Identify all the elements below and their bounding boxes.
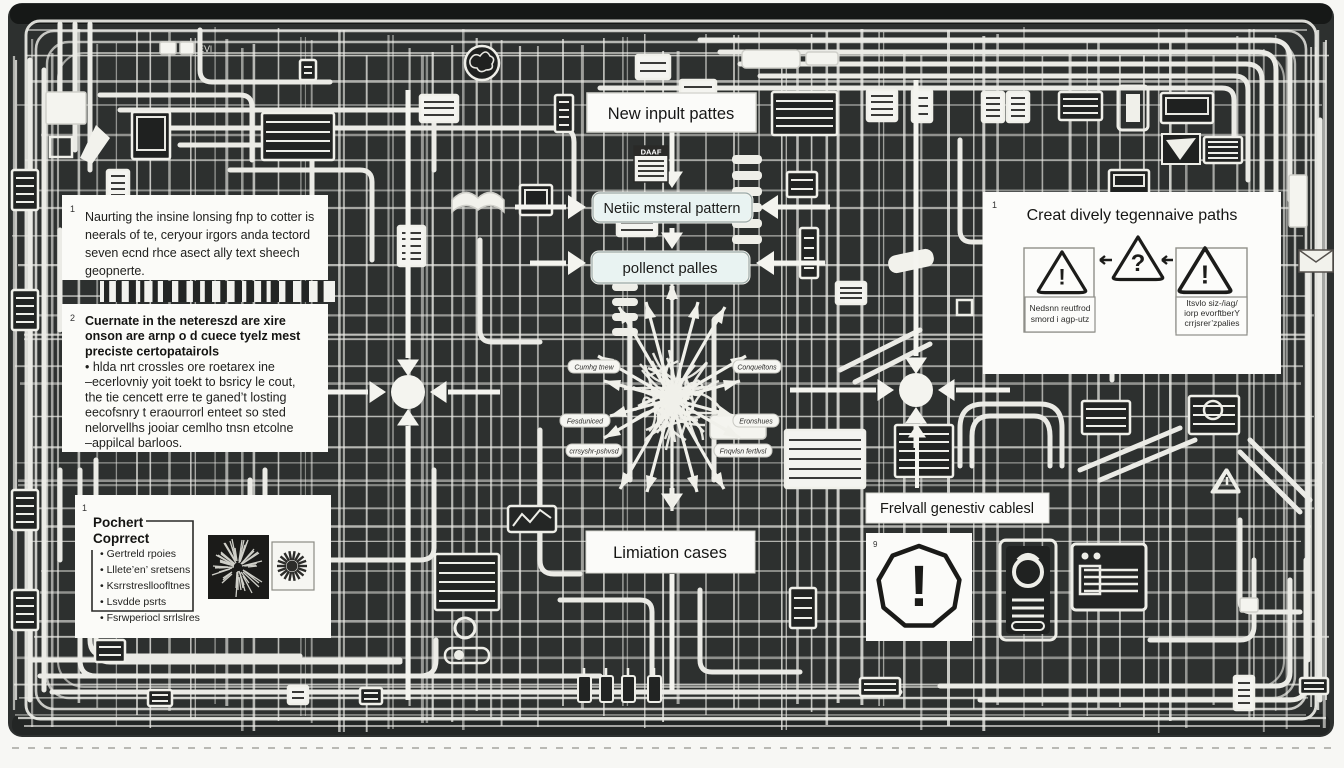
svg-text:New inpult pattes: New inpult pattes — [608, 105, 735, 123]
svg-text:neerals of te, ceryour irgors: neerals of te, ceryour irgors anda tecto… — [85, 228, 310, 242]
svg-text:nelorvellhs jooiar cemlho tnsn: nelorvellhs jooiar cemlho tnsn etcolne — [85, 421, 293, 435]
svg-text:Nedsnn reutfrod: Nedsnn reutfrod — [1030, 303, 1091, 313]
svg-text:!: ! — [1201, 259, 1210, 289]
svg-text:1: 1 — [70, 204, 75, 214]
svg-text:Itsvlo siz-/iag/: Itsvlo siz-/iag/ — [1186, 298, 1238, 308]
svg-text:Limiation cases: Limiation cases — [613, 544, 727, 562]
svg-text:• Lsvdde psrts: • Lsvdde psrts — [100, 596, 166, 608]
svg-text:EVl: EVl — [198, 44, 212, 54]
svg-text:–appilcal barloos.: –appilcal barloos. — [85, 436, 182, 450]
svg-text:Eronshues: Eronshues — [739, 419, 773, 426]
svg-text:geopnerte.: geopnerte. — [85, 264, 145, 278]
svg-text:the tie cencett erre te ganed’: the tie cencett erre te ganed’t losting — [85, 390, 287, 404]
svg-text:Frelvall genestiv cablesl: Frelvall genestiv cablesl — [880, 501, 1034, 517]
svg-text:• Gertreld rpoies: • Gertreld rpoies — [100, 548, 176, 560]
svg-text:?: ? — [1131, 250, 1146, 277]
svg-text:Cumhg tnew: Cumhg tnew — [574, 365, 614, 372]
svg-text:pollenct palles: pollenct palles — [622, 260, 717, 277]
svg-text:crrjsrer’zpalies: crrjsrer’zpalies — [1184, 318, 1239, 328]
svg-text:Netiic msteral pattern: Netiic msteral pattern — [604, 201, 741, 217]
svg-text:• Ksrrstreslloofltnes: • Ksrrstreslloofltnes — [100, 580, 190, 592]
svg-text:Pochert: Pochert — [93, 515, 144, 530]
svg-text:Coprrect: Coprrect — [93, 531, 150, 546]
svg-text:Creat dively tegennaive paths: Creat dively tegennaive paths — [1027, 207, 1238, 224]
svg-text:Fnqvlsn fertlvsl: Fnqvlsn fertlvsl — [720, 449, 767, 456]
svg-text:preciste certopatairols: preciste certopatairols — [85, 344, 219, 358]
svg-text:Cuernate in the netereszd are: Cuernate in the netereszd are xire — [85, 314, 286, 328]
svg-text:9: 9 — [873, 540, 878, 549]
svg-text:–ecerlovniy yoit toekt to bsri: –ecerlovniy yoit toekt to bsricy le cout… — [85, 375, 296, 389]
svg-text:1: 1 — [82, 503, 87, 513]
svg-text:• hlda nrt crossles ore roetar: • hlda nrt crossles ore roetarex ine — [85, 360, 275, 374]
svg-text:!: ! — [1058, 264, 1065, 289]
svg-text:DAAF: DAAF — [641, 148, 662, 157]
svg-text:Fesduniced: Fesduniced — [567, 419, 604, 426]
svg-text:Conqueltons: Conqueltons — [737, 365, 777, 372]
svg-text:• Fsrwperiocl srrlslres: • Fsrwperiocl srrlslres — [100, 612, 200, 624]
svg-text:crrsyshr-pshvsd: crrsyshr-pshvsd — [569, 449, 619, 456]
svg-text:2: 2 — [70, 313, 75, 323]
svg-text:iorp evorftberY: iorp evorftberY — [1184, 308, 1240, 318]
svg-text:!: ! — [909, 554, 928, 619]
svg-text:seven ecnd rhce asect ally tex: seven ecnd rhce asect ally text sheech — [85, 246, 300, 260]
svg-text:Naurting the insine lonsing fn: Naurting the insine lonsing fnp to cotte… — [85, 210, 314, 224]
svg-text:smord i agp-utz: smord i agp-utz — [1031, 314, 1090, 324]
svg-text:• Lllete’en’ sretsens: • Lllete’en’ sretsens — [100, 564, 190, 576]
svg-text:eecofsnry t eraourrorl enteet: eecofsnry t eraourrorl enteet so sted — [85, 406, 286, 420]
svg-text:onson are arnp o d cuece tyelz: onson are arnp o d cuece tyelz mest — [85, 329, 301, 343]
svg-text:1: 1 — [992, 200, 997, 210]
